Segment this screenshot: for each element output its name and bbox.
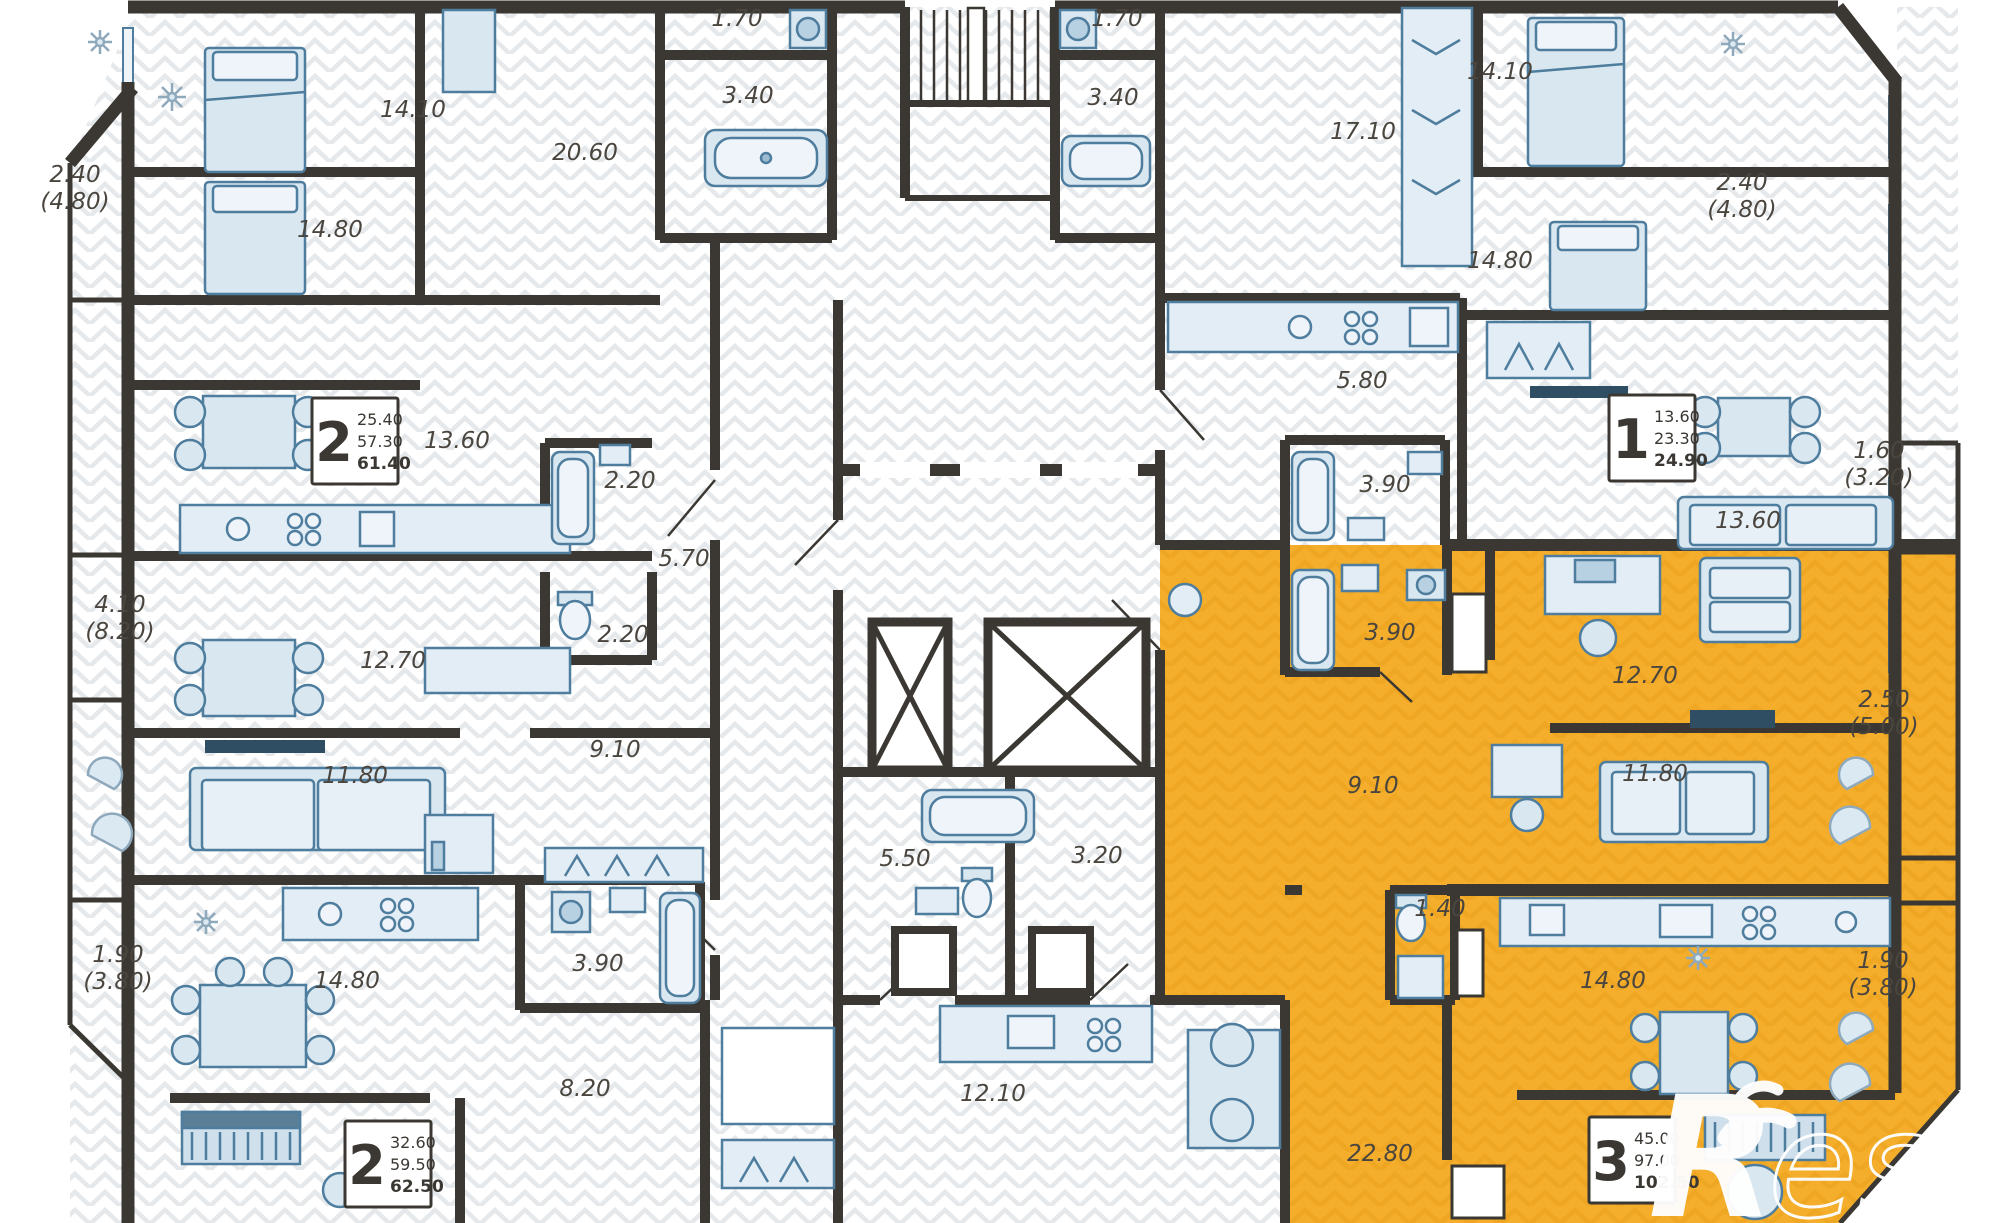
plant-icon [194, 910, 218, 934]
badge-area-value: 61.40 [357, 454, 411, 474]
apartment-badge: 225.4057.3061.40 [312, 398, 411, 484]
room-area-label: 2.20 [597, 622, 648, 648]
room-area-label: 1.40 [1414, 896, 1465, 922]
sink [1342, 565, 1378, 591]
dining-table [203, 396, 295, 468]
room-area-label: 3.90 [1359, 472, 1410, 498]
room-area-label-line2: (3.20) [1844, 465, 1913, 491]
room-area-label: 11.80 [322, 763, 388, 789]
room-area-label-line2: (3.80) [83, 969, 152, 995]
room-area-label: 5.70 [658, 546, 709, 572]
kitchen-counter [283, 888, 478, 940]
room-area-label: 12.70 [1612, 663, 1678, 689]
room-area-label: 3.90 [1364, 620, 1415, 646]
badge-area-value: 62.50 [390, 1177, 444, 1197]
dining-table [200, 985, 306, 1067]
room-area-label: 2.20 [604, 468, 655, 494]
watermark-initial: R [1648, 1060, 1777, 1223]
room-area-label: 3.40 [1087, 85, 1138, 111]
badge-area-value: 25.40 [357, 410, 403, 429]
sink [610, 888, 645, 912]
room-area-label: 11.80 [1622, 761, 1688, 787]
room-area-label: 3.40 [722, 83, 773, 109]
badge-area-value: 57.30 [357, 432, 403, 451]
plant-icon [1721, 32, 1745, 56]
watermark: R estate [1648, 1060, 2000, 1223]
badge-rooms-count: 1 [1612, 408, 1650, 471]
badge-rooms-count: 3 [1592, 1130, 1630, 1193]
room-area-label: 14.80 [314, 968, 380, 994]
room-area-label: 14.80 [1580, 968, 1646, 994]
room-area-label: 1.90 [1857, 948, 1908, 974]
room-area-label: 22.80 [1347, 1141, 1413, 1167]
sink [600, 445, 630, 465]
room-area-label: 14.80 [1467, 248, 1533, 274]
badge-rooms-count: 2 [348, 1134, 386, 1197]
desk [1492, 745, 1562, 797]
badge-area-value: 32.60 [390, 1133, 436, 1152]
room-area-label: 1.70 [1091, 6, 1142, 32]
shelf [1398, 956, 1443, 998]
plant-icon [1686, 946, 1710, 970]
room-area-label: 17.10 [1330, 119, 1396, 145]
wardrobe [443, 10, 495, 92]
closet-hangers [722, 1140, 834, 1188]
room-area-label: 13.60 [1715, 508, 1781, 534]
coffee-table [1690, 710, 1775, 728]
table [1718, 398, 1790, 456]
sink [1348, 518, 1384, 540]
room-area-label: 9.10 [589, 737, 640, 763]
room-area-label: 1.90 [92, 942, 143, 968]
plant-icon [88, 30, 112, 54]
badge-area-value: 24.90 [1654, 451, 1708, 471]
closet-hangers [545, 848, 703, 882]
elevator-large [988, 622, 1146, 770]
room-area-label: 2.40 [1716, 170, 1767, 196]
wardrobe [1402, 8, 1472, 266]
room-area-label-line2: (8.20) [85, 619, 154, 645]
plant-icon [158, 83, 186, 111]
room-area-label: 12.70 [360, 648, 426, 674]
apartment-badge: 232.6059.5062.50 [345, 1121, 444, 1207]
sink [916, 888, 958, 914]
room-area-label: 2.50 [1858, 687, 1909, 713]
room-area-label: 3.20 [1071, 843, 1122, 869]
badge-area-value: 23.30 [1654, 429, 1700, 448]
closet-hangers [1487, 322, 1590, 378]
room-area-label: 3.90 [572, 951, 623, 977]
room-area-label: 14.10 [1467, 59, 1533, 85]
room-area-label-line2: (5.00) [1849, 714, 1918, 740]
closet [722, 1028, 834, 1124]
room-area-label: 14.80 [297, 217, 363, 243]
tv [205, 740, 325, 753]
room-area-label: 8.20 [559, 1076, 610, 1102]
room-area-label: 13.60 [424, 428, 490, 454]
room-area-label: 14.10 [380, 97, 446, 123]
sideboard [425, 648, 570, 693]
sink [1169, 584, 1201, 616]
chair [1580, 620, 1616, 656]
badge-area-value: 13.60 [1654, 407, 1700, 426]
floor-plan-drawing: 2.40(4.80)14.1020.601.703.401.703.4017.1… [0, 0, 2000, 1223]
room-area-label: 9.10 [1347, 773, 1398, 799]
room-area-label: 4.10 [94, 592, 145, 618]
room-area-label-line2: (4.80) [1707, 197, 1776, 223]
room-area-label: 20.60 [552, 140, 618, 166]
chair [1511, 799, 1543, 831]
watermark-rest: estate [1768, 1081, 2000, 1223]
room-area-label: 5.80 [1336, 368, 1387, 394]
room-area-label-line2: (3.80) [1848, 975, 1917, 1001]
apartment-badge: 113.6023.3024.90 [1609, 395, 1708, 481]
dining-table [203, 640, 295, 716]
badge-area-value: 59.50 [390, 1155, 436, 1174]
elevator-small [872, 622, 948, 770]
room-area-label: 1.70 [711, 6, 762, 32]
lobby-window-slits [860, 462, 1138, 478]
badge-rooms-count: 2 [315, 411, 353, 474]
room-area-label: 1.60 [1853, 438, 1904, 464]
floor-plan: 2.40(4.80)14.1020.601.703.401.703.4017.1… [0, 0, 2000, 1223]
washing-machine [1408, 452, 1442, 474]
room-area-label-line2: (4.80) [40, 189, 109, 215]
room-area-label: 2.40 [49, 162, 100, 188]
room-area-label: 5.50 [879, 846, 930, 872]
room-area-label: 12.10 [960, 1081, 1026, 1107]
